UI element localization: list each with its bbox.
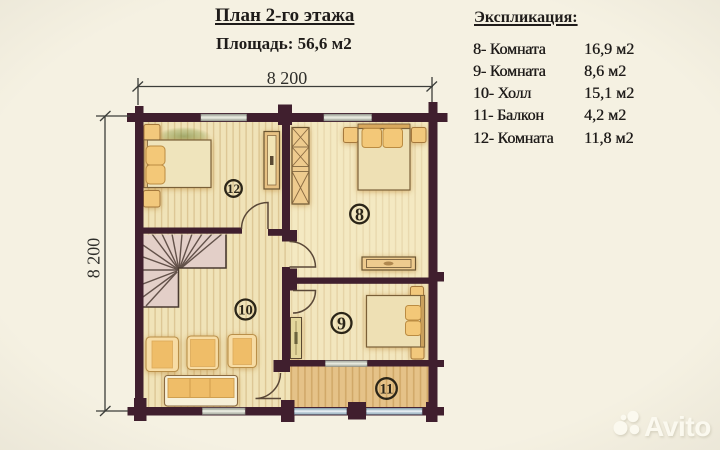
svg-text:Avito: Avito <box>644 411 711 442</box>
